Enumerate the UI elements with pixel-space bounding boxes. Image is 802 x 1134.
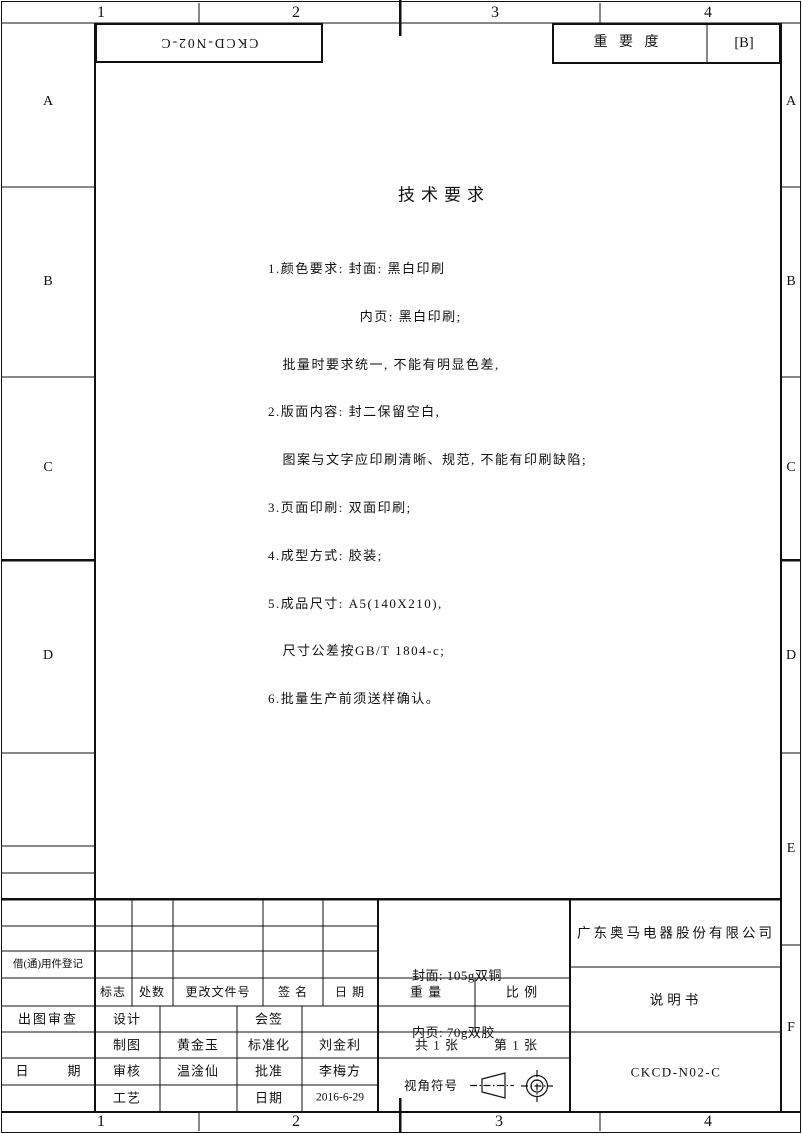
paper-spec-cover: 封面: 105g双铜 <box>412 966 502 985</box>
tech-line: 3.页面印刷: 双面印刷; <box>268 500 587 516</box>
sig-draft-name: 黄金玉 <box>177 1039 219 1052</box>
tech-line: 2.版面内容: 封二保留空白, <box>268 404 587 420</box>
sig-approve-label: 批准 <box>255 1065 283 1078</box>
zone-letter-left-d: D <box>43 649 53 663</box>
sig-check-name: 温淦仙 <box>177 1065 219 1078</box>
tech-requirements-body: 1.颜色要求: 封面: 黑白印刷 内页: 黑白印刷; 批量时要求统一, 不能有明… <box>268 229 587 739</box>
tech-line: 内页: 黑白印刷; <box>268 309 587 325</box>
sig-process-label: 工艺 <box>113 1092 141 1105</box>
importance-label: 重 要 度 <box>594 36 663 50</box>
zone-number-top-4: 4 <box>704 5 712 21</box>
zone-letter-right-f: F <box>787 1021 795 1035</box>
zone-number-bottom-2: 2 <box>292 1114 300 1130</box>
zone-number-top-3: 3 <box>491 5 499 21</box>
total-sheets: 共 1 张 <box>415 1039 459 1052</box>
paper-spec: 封面: 105g双铜 内页: 70g双胶 <box>412 928 502 1080</box>
document-title: 说明书 <box>650 993 703 1007</box>
sig-check-label: 审核 <box>113 1065 141 1078</box>
tech-line: 批量时要求统一, 不能有明显色差, <box>268 357 587 373</box>
plot-review-label: 出图审查 <box>18 1013 78 1026</box>
zone-number-top-1: 1 <box>97 5 105 21</box>
company-name: 广东奥马电器股份有限公司 <box>577 926 775 940</box>
tech-line: 5.成品尺寸: A5(140X210), <box>268 596 587 612</box>
zone-letter-left-c: C <box>43 461 52 475</box>
sig-draft-label: 制图 <box>113 1039 141 1052</box>
zone-letter-right-a: A <box>786 95 796 109</box>
zone-letter-right-c: C <box>786 461 795 475</box>
sig-countersign-label: 会签 <box>255 1013 283 1026</box>
sig-approve-name: 李梅方 <box>319 1065 361 1078</box>
sheet-number: 第 1 张 <box>494 1039 538 1052</box>
revision-col-docno: 更改文件号 <box>185 986 250 998</box>
revision-col-mark: 标志 <box>100 986 126 998</box>
tech-line: 尺寸公差按GB/T 1804-c; <box>268 643 587 659</box>
scale-label: 比 例 <box>506 986 538 999</box>
zone-letter-left-a: A <box>43 95 53 109</box>
zone-letter-right-d: D <box>786 649 796 663</box>
zone-number-bottom-3: 3 <box>495 1114 503 1130</box>
tech-line: 4.成型方式: 胶装; <box>268 548 587 564</box>
revision-col-signature: 签 名 <box>278 986 308 998</box>
sig-date-label: 日期 <box>255 1092 283 1105</box>
sig-standardize-label: 标准化 <box>248 1039 290 1052</box>
zone-number-top-2: 2 <box>292 5 300 21</box>
tech-line: 6.批量生产前须送样确认。 <box>268 691 587 707</box>
drawing-number: CKCD-N02-C <box>631 1066 722 1079</box>
importance-value: [B] <box>734 36 753 51</box>
zone-letter-left-b: B <box>43 275 52 289</box>
zone-letter-right-b: B <box>786 275 795 289</box>
date-label-left: 日 期 <box>15 1065 80 1078</box>
zone-number-bottom-4: 4 <box>704 1114 712 1130</box>
revision-col-count: 处数 <box>139 986 165 998</box>
tech-requirements-title: 技术要求 <box>398 187 490 204</box>
zone-number-bottom-1: 1 <box>97 1114 105 1130</box>
sig-standardize-name: 刘金利 <box>319 1039 361 1052</box>
tech-line: 图案与文字应印刷清晰、规范, 不能有印刷缺陷; <box>268 452 587 468</box>
view-symbol-label: 视角符号 <box>404 1080 458 1093</box>
tech-line: 1.颜色要求: 封面: 黑白印刷 <box>268 261 587 277</box>
sig-date-value: 2016-6-29 <box>316 1092 364 1104</box>
revision-col-date: 日 期 <box>335 986 365 998</box>
borrow-register-label: 借(通)用件登记 <box>13 960 83 971</box>
sig-design-label: 设计 <box>113 1013 141 1026</box>
flipped-drawing-code: CKCD-N02-C <box>160 36 259 50</box>
drawing-sheet: 1 2 3 4 1 2 3 4 A B C D A B C D E F CKCD… <box>0 0 802 1134</box>
zone-letter-right-e: E <box>787 842 796 856</box>
